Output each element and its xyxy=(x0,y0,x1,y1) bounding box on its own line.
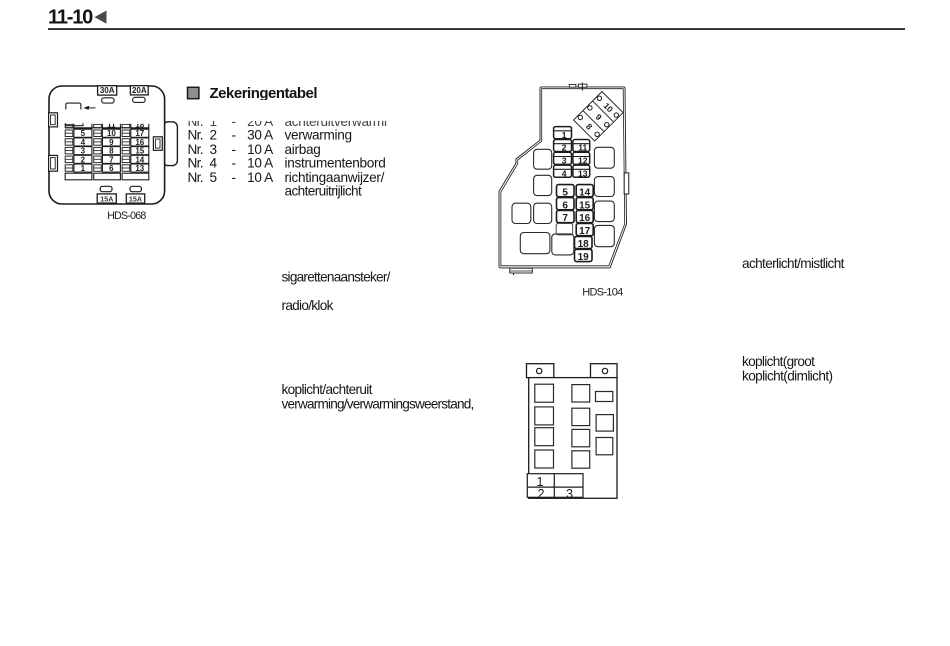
svg-text:15: 15 xyxy=(579,200,591,211)
svg-text:koplicht(dimlicht): koplicht(dimlicht) xyxy=(742,369,832,384)
svg-text:4: 4 xyxy=(562,168,567,178)
svg-text:5: 5 xyxy=(81,129,86,138)
svg-text:18: 18 xyxy=(578,239,590,250)
svg-text:3: 3 xyxy=(566,487,573,501)
svg-text:3: 3 xyxy=(562,156,567,166)
svg-text:14: 14 xyxy=(135,155,144,164)
svg-text:6: 6 xyxy=(109,164,114,173)
svg-text:achterlicht/mistlicht: achterlicht/mistlicht xyxy=(742,256,845,271)
svg-text:Zekeringentabel: Zekeringentabel xyxy=(210,85,318,102)
svg-text:2: 2 xyxy=(537,487,544,501)
svg-text:17: 17 xyxy=(135,129,144,138)
svg-text:7: 7 xyxy=(109,155,114,164)
svg-text:Nr.: Nr. xyxy=(188,156,203,171)
svg-text:Nr.: Nr. xyxy=(188,128,203,143)
svg-text:4: 4 xyxy=(210,156,218,171)
svg-text:1: 1 xyxy=(81,164,86,173)
svg-text:2: 2 xyxy=(210,128,218,143)
svg-text:Nr.: Nr. xyxy=(188,170,203,185)
svg-text:2: 2 xyxy=(81,155,86,164)
svg-text:20A: 20A xyxy=(132,86,147,95)
svg-text:HDS-068: HDS-068 xyxy=(107,210,146,222)
svg-text:sigarettenaansteker/: sigarettenaansteker/ xyxy=(282,270,391,285)
svg-text:30 A: 30 A xyxy=(247,128,274,143)
svg-text:verwarming/verwarmingsweerstan: verwarming/verwarmingsweerstand, xyxy=(282,397,474,412)
svg-text:-: - xyxy=(232,128,237,143)
svg-text:2: 2 xyxy=(562,143,567,153)
svg-text:11-10: 11-10 xyxy=(48,7,93,29)
svg-text:10: 10 xyxy=(107,129,116,138)
svg-text:15: 15 xyxy=(135,147,144,156)
svg-text:9: 9 xyxy=(109,138,114,147)
svg-text:10 A: 10 A xyxy=(247,156,274,171)
svg-text:instrumentenbord: instrumentenbord xyxy=(285,156,386,171)
svg-text:14: 14 xyxy=(579,187,591,198)
svg-text:3: 3 xyxy=(81,147,86,156)
svg-text:1: 1 xyxy=(562,130,567,140)
svg-text:achteruitrijlicht: achteruitrijlicht xyxy=(285,184,363,199)
svg-text:koplicht/achteruit: koplicht/achteruit xyxy=(282,382,373,397)
svg-text:17: 17 xyxy=(579,226,591,237)
svg-text:HDS-104: HDS-104 xyxy=(582,287,623,299)
svg-text:radio/klok: radio/klok xyxy=(282,298,334,313)
svg-text:15A: 15A xyxy=(129,195,142,204)
svg-text:11: 11 xyxy=(578,143,587,153)
svg-text:16: 16 xyxy=(579,213,591,224)
svg-text:5: 5 xyxy=(210,170,218,185)
svg-text:-: - xyxy=(232,170,237,185)
svg-text:4: 4 xyxy=(81,138,86,147)
svg-text:5: 5 xyxy=(562,187,568,198)
svg-text:19: 19 xyxy=(578,252,590,263)
svg-text:16: 16 xyxy=(135,138,144,147)
svg-text:15A: 15A xyxy=(100,195,113,204)
svg-text:13: 13 xyxy=(135,164,144,173)
svg-text:8: 8 xyxy=(109,147,114,156)
svg-text:30A: 30A xyxy=(100,86,115,95)
svg-text:verwarming: verwarming xyxy=(285,128,352,143)
svg-text:7: 7 xyxy=(562,213,568,224)
svg-text:-: - xyxy=(232,156,237,171)
svg-text:10 A: 10 A xyxy=(247,170,274,185)
svg-text:koplicht(groot: koplicht(groot xyxy=(742,354,815,369)
svg-text:12: 12 xyxy=(578,156,588,166)
svg-text:6: 6 xyxy=(562,200,568,211)
svg-text:13: 13 xyxy=(578,168,588,178)
